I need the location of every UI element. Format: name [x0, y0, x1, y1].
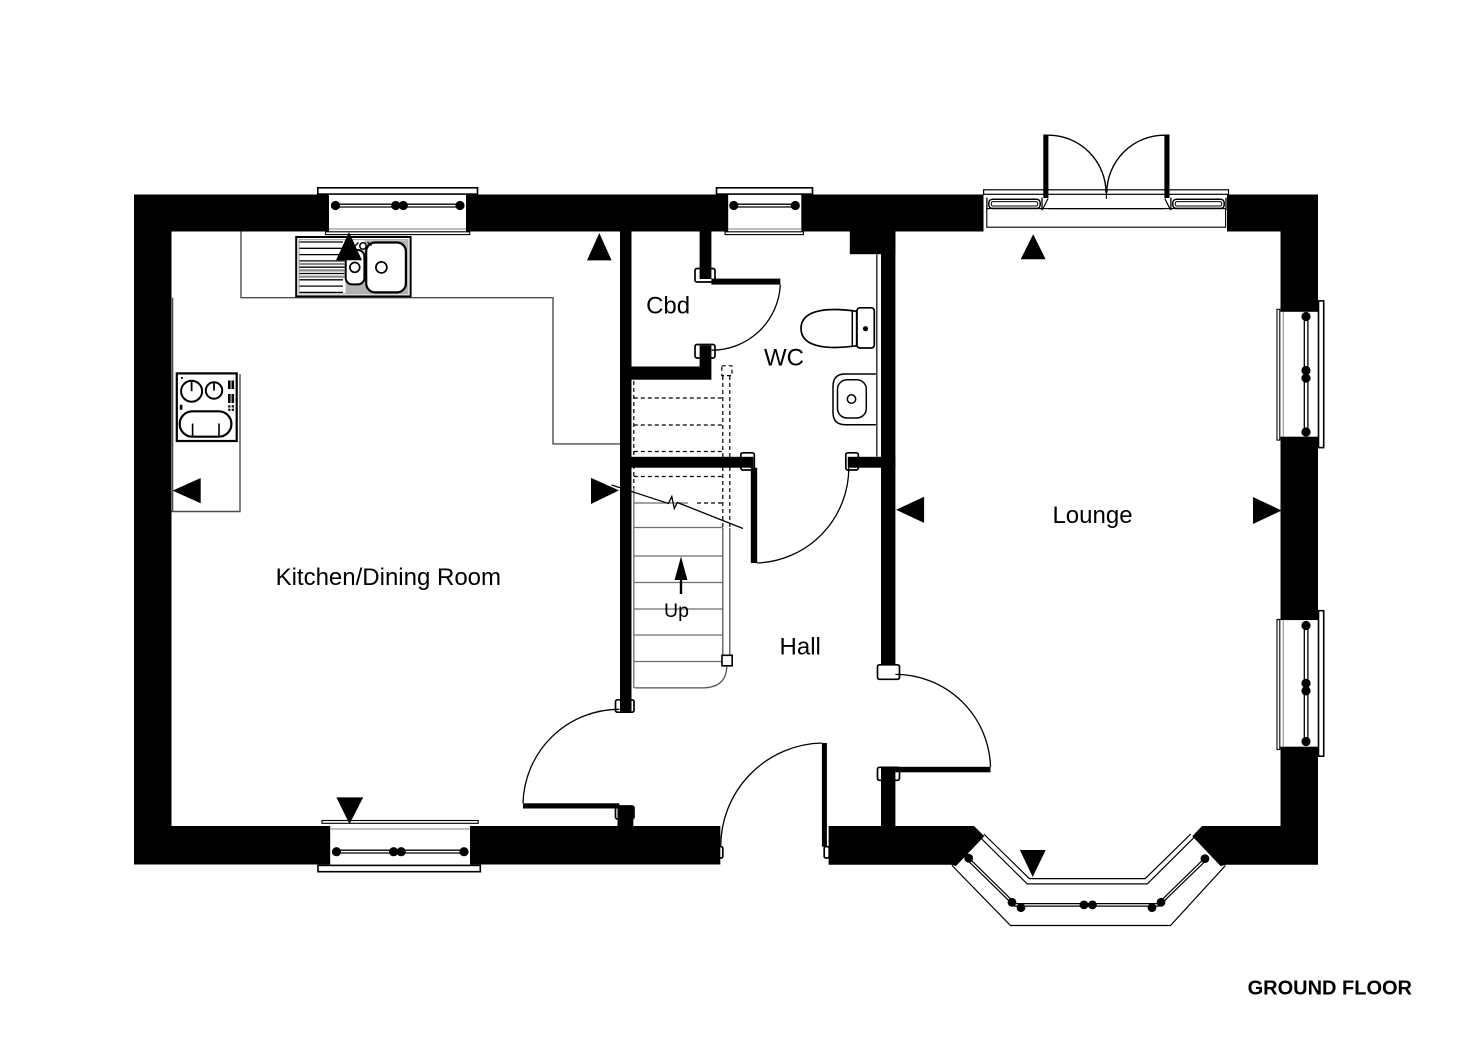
svg-text:Lounge: Lounge [1052, 502, 1132, 529]
svg-text:Up: Up [664, 600, 689, 622]
svg-text:Hall: Hall [780, 633, 821, 660]
svg-text:WC: WC [764, 345, 804, 372]
svg-text:GROUND FLOOR: GROUND FLOOR [1248, 977, 1413, 999]
svg-text:Cbd: Cbd [646, 293, 690, 320]
svg-text:Kitchen/Dining Room: Kitchen/Dining Room [276, 564, 501, 591]
